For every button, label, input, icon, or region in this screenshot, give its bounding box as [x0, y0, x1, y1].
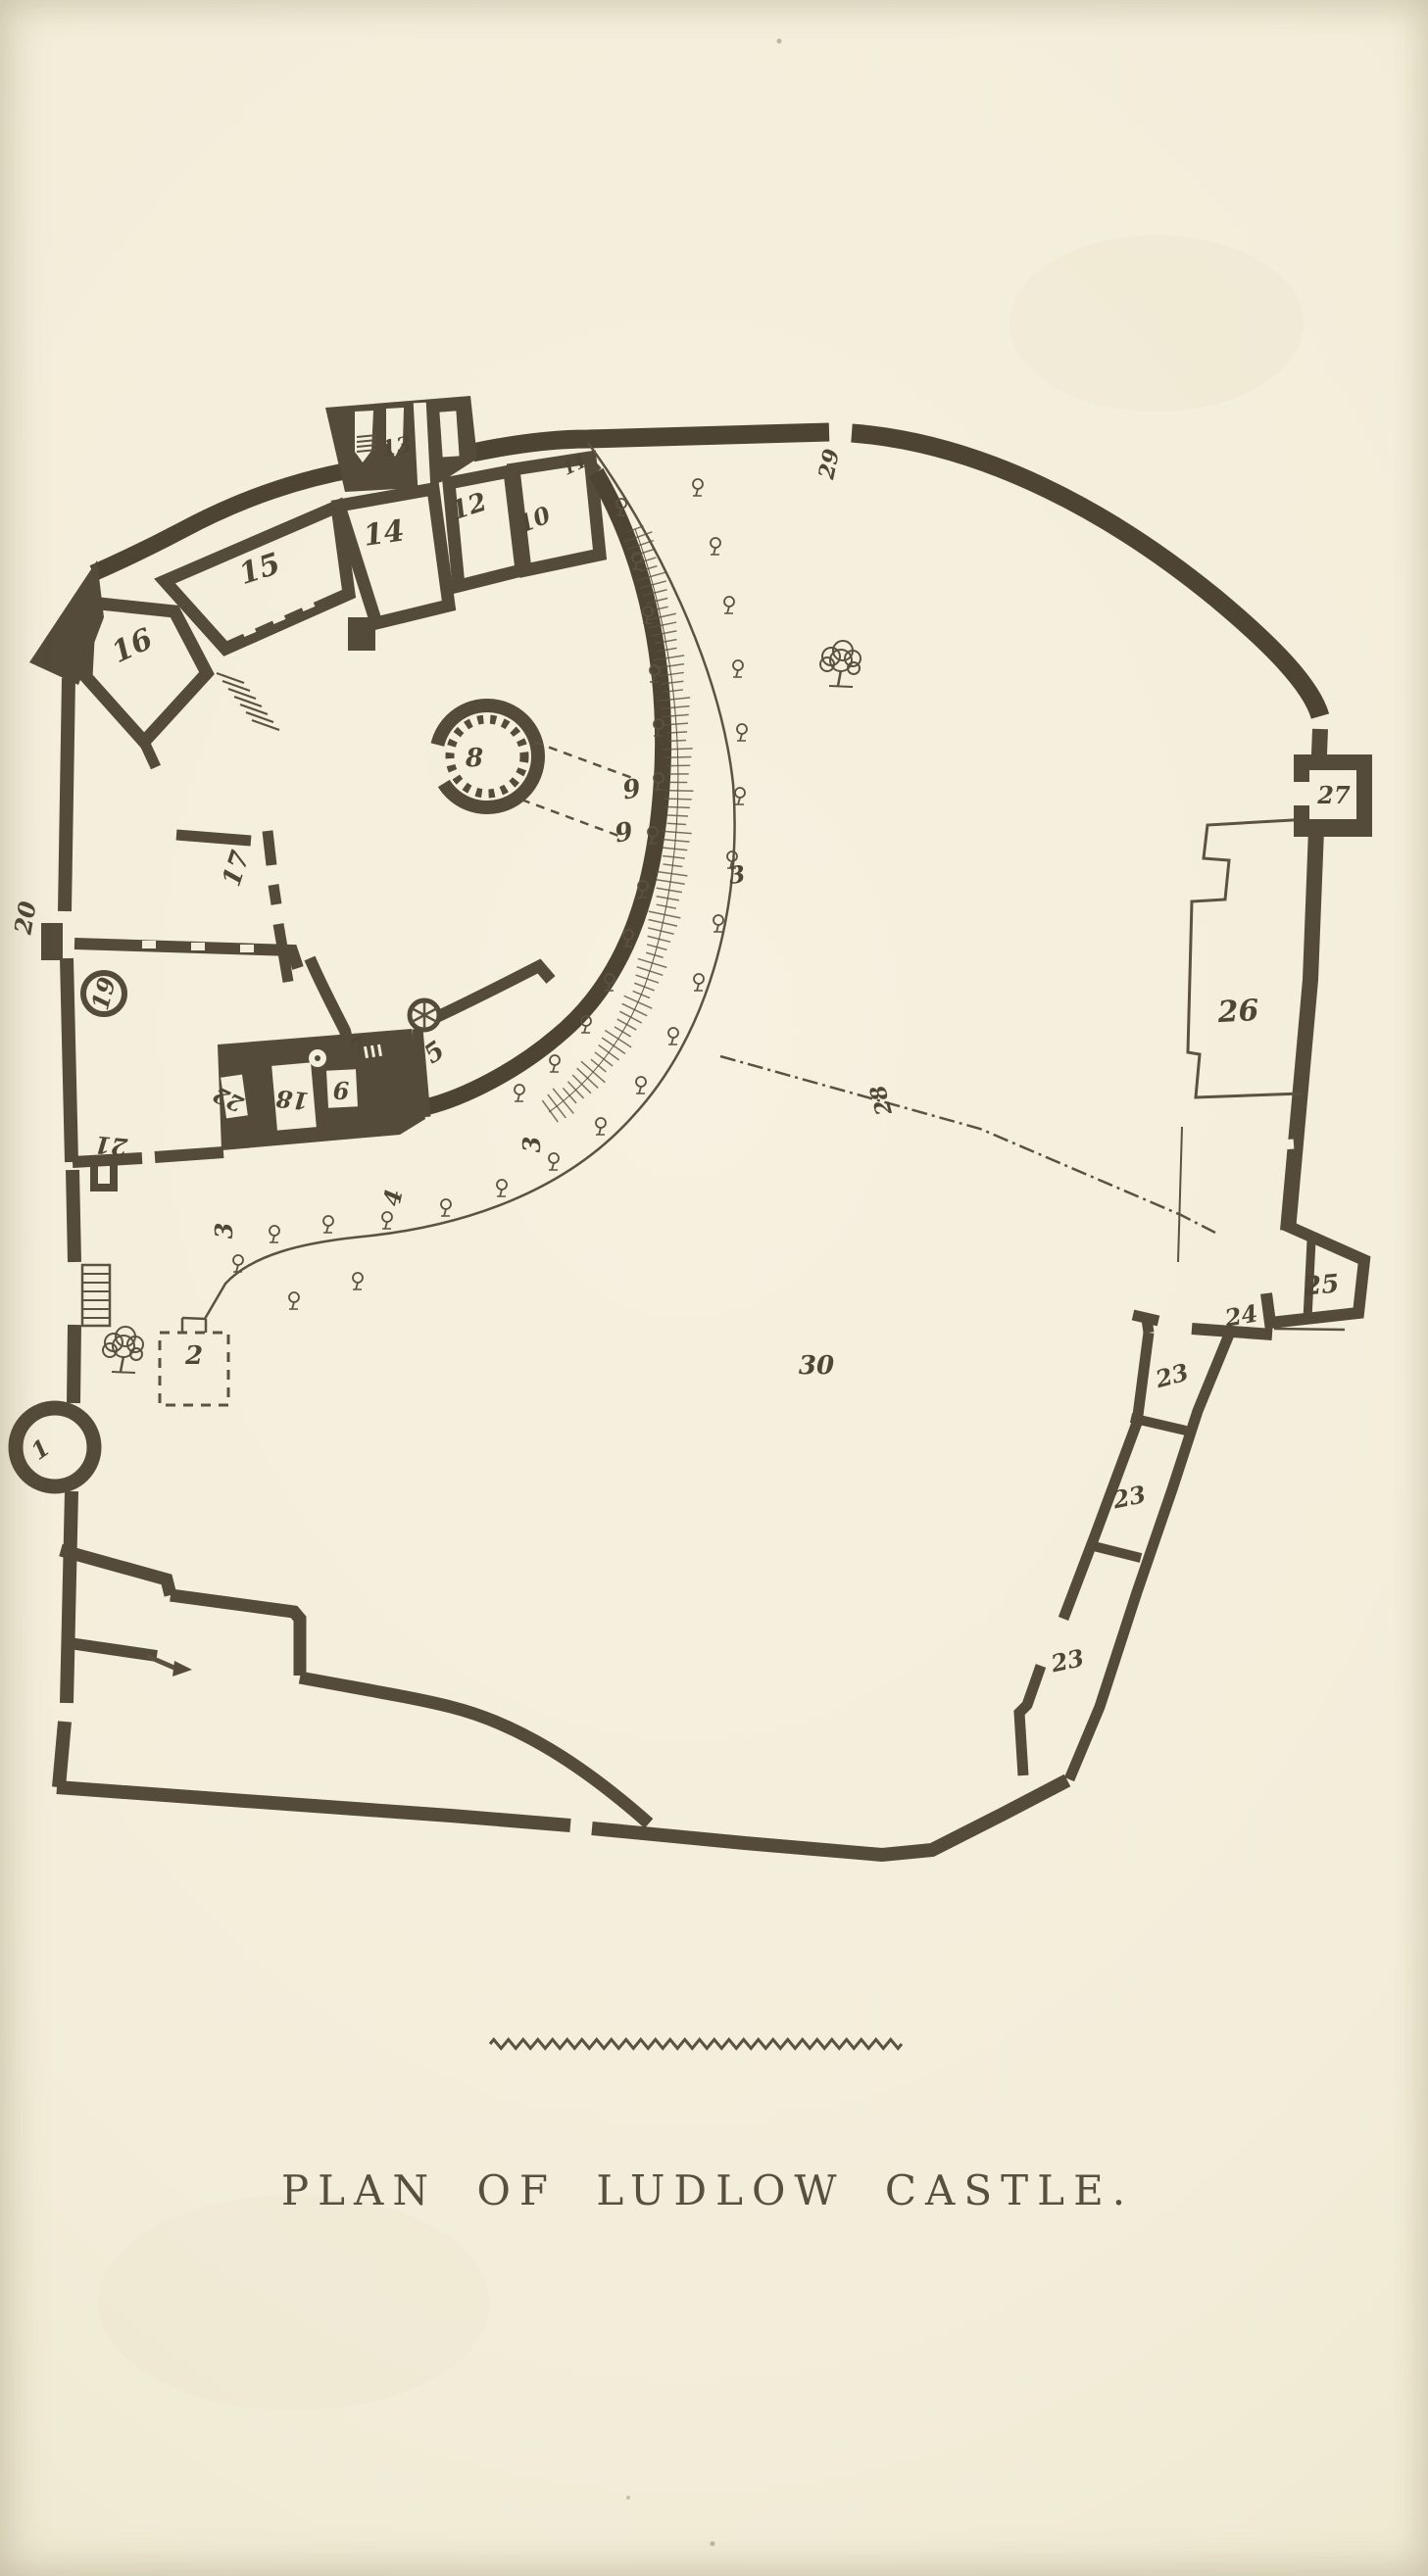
north-wall-east [472, 432, 829, 453]
tree-ground [829, 686, 853, 687]
west-wall-upper [65, 678, 69, 911]
tree-crown [289, 1292, 299, 1302]
boundary-line-vertical [1178, 1127, 1182, 1262]
fosse-hatch-mark [664, 799, 691, 800]
tree-trunk [517, 1094, 519, 1101]
plan-label-18: 18 [274, 1085, 310, 1116]
west-wall-middle [67, 958, 74, 1403]
tree-trunk [714, 548, 715, 555]
tree-icon [353, 1273, 363, 1289]
fosse-hatch-mark [634, 983, 654, 991]
plan-label-28: 28 [865, 1083, 898, 1119]
tree-crown [711, 538, 720, 548]
porch-outline [182, 1318, 206, 1333]
tree-trunk [697, 984, 699, 991]
gatehouse-slot [439, 411, 459, 457]
tree-trunk [727, 607, 729, 613]
plate-caption: PLAN OF LUDLOW CASTLE. [281, 2166, 1134, 2214]
south-wall-west [57, 1787, 570, 1825]
court-stairs-step [246, 712, 273, 722]
tree-trunk [292, 1302, 294, 1309]
tree-trunk [272, 1236, 274, 1242]
tree-icon [441, 1199, 451, 1216]
scan-speck [777, 39, 782, 44]
tree-trunk [736, 670, 738, 677]
tree-icon [289, 1292, 299, 1309]
plan-label-1: 1 [25, 1433, 55, 1465]
tree-icon [323, 1216, 333, 1233]
tree-crown [735, 788, 745, 798]
fosse-hatch-mark [636, 975, 659, 983]
plan-label-6: 6 [333, 1077, 350, 1105]
room-14-foot [348, 617, 375, 651]
plan-label-8: 8 [465, 744, 483, 773]
tree-trunk [838, 670, 841, 686]
boundary-line-28 [720, 1056, 1215, 1233]
chapel-door-gap [435, 745, 443, 784]
scanned-page: 1 2 3 3 3 4 5 6 7 8 9 9 10 11 12 13 14 1… [0, 0, 1428, 2576]
tree-trunk [716, 925, 718, 932]
tree-ground [112, 1372, 135, 1373]
tree-trunk [639, 1087, 641, 1094]
plan-label-3a: 3 [727, 859, 748, 890]
plan-label-23b: 23 [1109, 1480, 1149, 1515]
tree-trunk [584, 1026, 586, 1033]
tree-icon [550, 1055, 560, 1072]
plan-label-29: 29 [813, 447, 845, 482]
tree-icon [515, 1085, 524, 1101]
plan-label-26: 26 [1216, 994, 1260, 1030]
fosse-hatch-mark [667, 823, 686, 824]
tree-icon [497, 1180, 507, 1196]
tree-icon [382, 1212, 392, 1229]
northeast-curve-wall [852, 433, 1320, 716]
plan-label-3b: 3 [517, 1137, 546, 1153]
fosse-hatch-mark [577, 1068, 599, 1088]
wall-dash [240, 945, 254, 952]
tree-crown [550, 1055, 560, 1065]
tree-icon [714, 915, 723, 932]
room-14-outline [339, 489, 449, 623]
tree-crown [668, 1028, 678, 1038]
large-tree-icon [820, 641, 861, 687]
plan-label-23a: 23 [1152, 1357, 1192, 1393]
tree-icon [668, 1028, 678, 1045]
plan-number-labels: 1 2 3 3 3 4 5 6 7 8 9 9 10 11 12 13 14 1… [8, 431, 1351, 1677]
garderobe-20-turret [41, 923, 63, 960]
tree-crown [270, 1226, 279, 1236]
plan-label-9a: 9 [620, 774, 643, 806]
tree-trunk [599, 1128, 601, 1135]
wall-21-hook [94, 1164, 114, 1188]
fosse-hatch-mark [665, 806, 690, 807]
court-stairs-step [217, 673, 244, 683]
range-26-outline [1188, 819, 1309, 1097]
tree-crown [515, 1085, 524, 1094]
court-stairs-step [240, 705, 268, 714]
tree-crown [323, 1216, 333, 1226]
tree-trunk [552, 1163, 554, 1170]
east-ranges [1019, 1225, 1364, 1779]
south-revetment-curve [300, 1677, 649, 1823]
castle-plan-plate: 1 2 3 3 3 4 5 6 7 8 9 9 10 11 12 13 14 1… [0, 0, 1428, 2576]
fosse-hatch-mark [602, 1038, 625, 1053]
fosse-hatch-mark [615, 1027, 631, 1037]
tree-crown [693, 479, 703, 489]
plan-label-27: 27 [1316, 781, 1351, 809]
plan-label-3c: 3 [210, 1223, 238, 1239]
courtyard-south-wall [74, 944, 298, 968]
fosse-hatch-mark [591, 1059, 606, 1072]
plan-label-9b: 9 [613, 817, 635, 850]
scan-speck [711, 2542, 715, 2547]
fosse-hatch-mark [633, 991, 650, 997]
fosse-hatch-mark [668, 740, 686, 741]
tree-trunk [738, 798, 740, 804]
tree-icon [737, 724, 747, 741]
plan-label-23c: 23 [1048, 1643, 1087, 1678]
plan-label-17: 17 [218, 848, 257, 891]
plan-label-2: 2 [184, 1341, 203, 1371]
fosse-hatch-mark [563, 1088, 576, 1102]
court-stairs-step [228, 689, 256, 699]
tree-crown [694, 974, 704, 984]
divider-squiggle [490, 2040, 902, 2049]
fosse-hatch-mark [663, 791, 693, 792]
fosse-hatch-mark [638, 958, 666, 967]
chapel-arcade-teeth [450, 719, 524, 794]
south-block-mass [218, 1029, 425, 1150]
tree-crown [441, 1199, 451, 1209]
fosse-hatch-mark [665, 757, 692, 758]
range-23-east-wall [1069, 1335, 1229, 1779]
fosse-hatch-mark [666, 815, 688, 816]
range-23-west-wall [1019, 1315, 1158, 1775]
plan-label-4: 4 [377, 1187, 409, 1208]
tree-crown [714, 915, 723, 925]
tree-icon [724, 597, 734, 613]
southwest-interior-wall [61, 1550, 300, 1676]
tree-trunk [121, 1356, 123, 1372]
court-stairs-step [252, 720, 279, 730]
postern-path [147, 1656, 176, 1669]
tree-trunk [500, 1190, 502, 1196]
fosse-hatch-mark [619, 1011, 641, 1023]
tree-crown [636, 1077, 646, 1087]
fosse-hatch-mark [581, 1061, 605, 1083]
tree-icon [694, 974, 704, 991]
plan-label-16: 16 [107, 622, 159, 670]
tree-icon [270, 1226, 279, 1242]
court-stairs-step [234, 697, 262, 706]
tree-icon [596, 1118, 606, 1135]
plan-label-14: 14 [362, 513, 407, 553]
fosse-hatch-mark [617, 1019, 637, 1030]
tree-icon [733, 660, 743, 677]
tree-icon [735, 788, 745, 804]
room-16-spur [144, 742, 156, 767]
tree-trunk [740, 734, 742, 741]
tree-crown [233, 1255, 243, 1265]
east-wall-door-gap [1280, 1140, 1295, 1150]
room-16-outline [86, 603, 207, 742]
tree-crown [353, 1273, 363, 1283]
plan-label-24: 24 [1222, 1298, 1260, 1333]
tree-crown [596, 1118, 606, 1128]
tree-crown [724, 597, 734, 607]
tree-trunk [326, 1226, 328, 1233]
tree-trunk [356, 1283, 358, 1289]
tree-trunk [385, 1222, 387, 1229]
round-tower-1 [16, 1408, 94, 1486]
wall-dash [191, 943, 205, 950]
tree-crown [382, 1212, 392, 1222]
tower-27-door [1294, 782, 1311, 805]
tree-icon [711, 538, 720, 555]
tree-icon [549, 1153, 559, 1170]
tree-trunk [696, 489, 698, 496]
boundary-line-east [1274, 1329, 1345, 1330]
tree-crown [549, 1153, 559, 1163]
tree-trunk [236, 1265, 238, 1272]
fosse-hatch-mark [637, 967, 663, 976]
well-dot [315, 1055, 320, 1061]
large-tree-icon [103, 1327, 143, 1373]
plan-label-21: 21 [93, 1131, 129, 1162]
wall-dash [142, 941, 156, 948]
tree-crown [733, 660, 743, 670]
plan-label-30: 30 [799, 1351, 834, 1381]
tree-icon [636, 1077, 646, 1094]
tree-trunk [671, 1038, 673, 1045]
fosse-hatch-mark [548, 1094, 566, 1118]
plan-label-25: 25 [1302, 1270, 1341, 1302]
tree-crown [737, 724, 747, 734]
southwest-lower-wall [63, 1642, 157, 1656]
postern-arrow-icon [172, 1661, 192, 1677]
fosse-hatch-mark [605, 1030, 631, 1046]
tree-crown [497, 1180, 507, 1190]
fosse-hatch-mark [553, 1089, 573, 1114]
court-stairs-step [222, 681, 250, 691]
tree-trunk [444, 1209, 446, 1216]
tree-icon [693, 479, 703, 496]
tree-trunk [553, 1065, 555, 1072]
south-wall-east [592, 1780, 1067, 1855]
plan-label-20: 20 [8, 899, 42, 937]
scan-speck [626, 2496, 630, 2500]
